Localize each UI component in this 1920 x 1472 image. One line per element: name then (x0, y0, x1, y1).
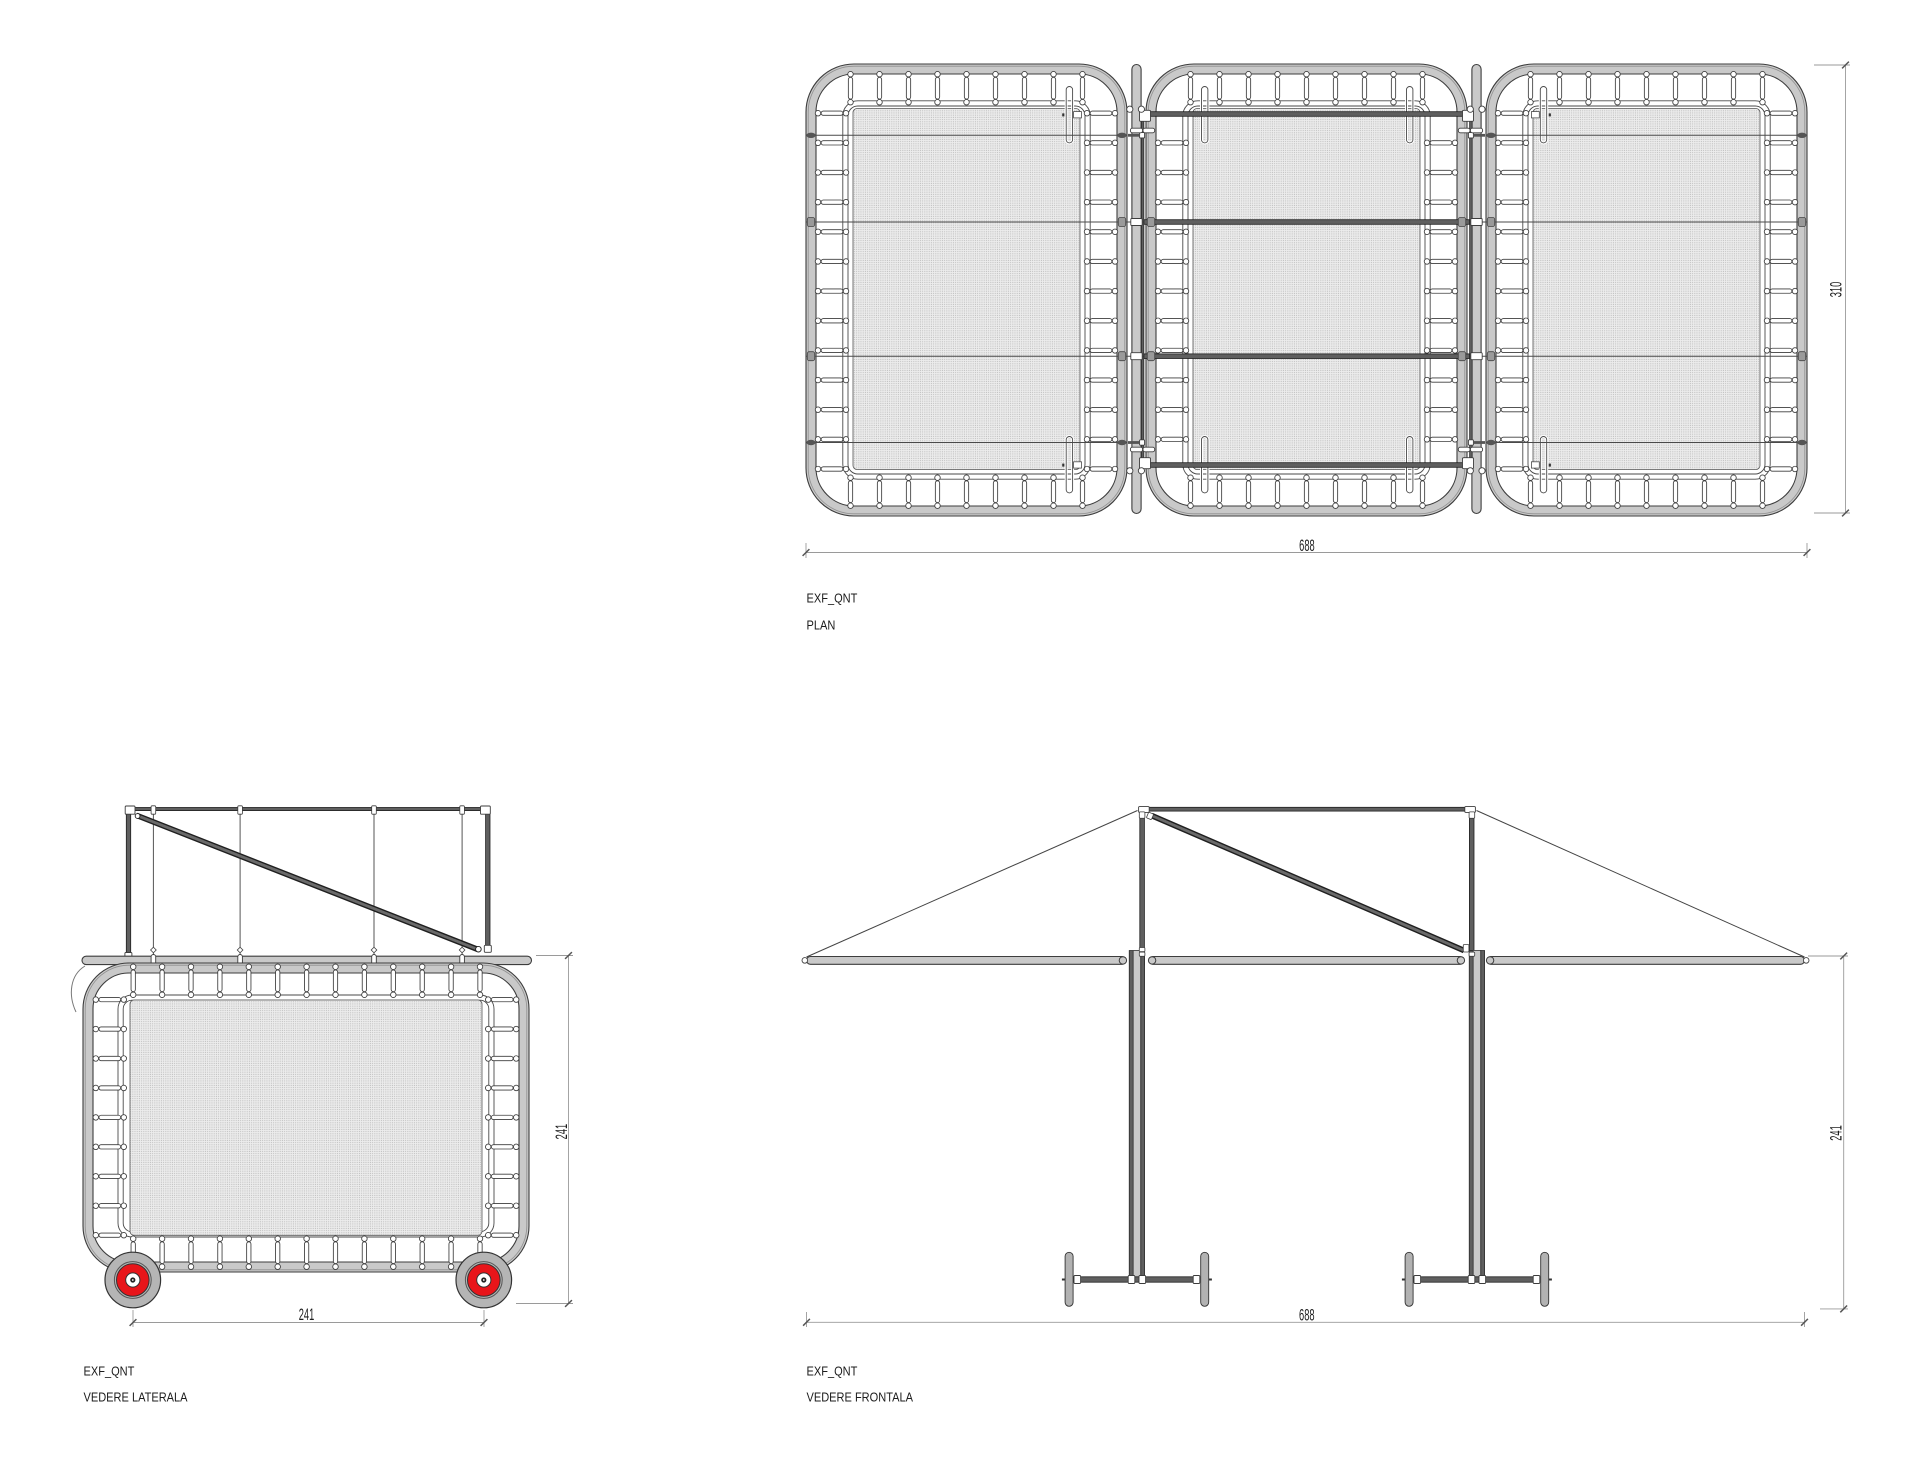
svg-text:PLAN: PLAN (807, 618, 836, 633)
svg-text:241: 241 (299, 1305, 314, 1324)
svg-text:EXF_QNT: EXF_QNT (807, 591, 858, 606)
svg-text:VEDERE LATERALA: VEDERE LATERALA (84, 1390, 189, 1405)
svg-text:241: 241 (552, 1124, 571, 1139)
svg-text:EXF_QNT: EXF_QNT (84, 1364, 135, 1379)
svg-text:EXF_QNT: EXF_QNT (807, 1364, 858, 1379)
svg-text:688: 688 (1299, 1305, 1314, 1324)
svg-text:VEDERE FRONTALA: VEDERE FRONTALA (807, 1390, 914, 1405)
svg-text:241: 241 (1827, 1125, 1846, 1140)
svg-text:688: 688 (1299, 536, 1314, 555)
svg-text:310: 310 (1827, 281, 1846, 297)
